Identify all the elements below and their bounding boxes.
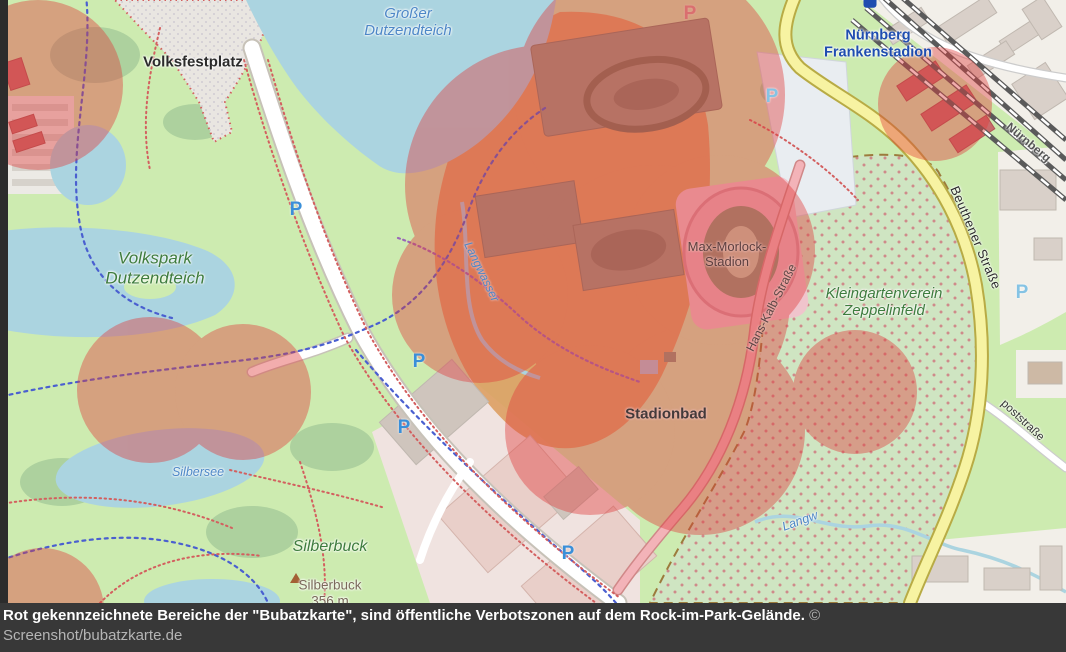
no-go-zone-circle [793,330,917,454]
caption-bar: Rot gekennzeichnete Bereiche der "Bubatz… [0,603,1066,652]
map-canvas [0,0,1066,603]
caption-text: Rot gekennzeichnete Bereiche der "Bubatz… [3,606,1003,646]
left-border-strip [0,0,8,603]
bubatzkarte-map[interactable]: Volksfestplatz Großer Dutzendteich Nürnb… [0,0,1066,603]
no-go-zone-circle [175,324,311,460]
caption-description: Rot gekennzeichnete Bereiche der "Bubatz… [3,607,805,624]
no-go-zone-circle [878,47,992,161]
screenshot-frame: Volksfestplatz Großer Dutzendteich Nürnb… [0,0,1066,652]
station-icon [864,0,877,8]
peak-marker-icon [290,573,302,583]
